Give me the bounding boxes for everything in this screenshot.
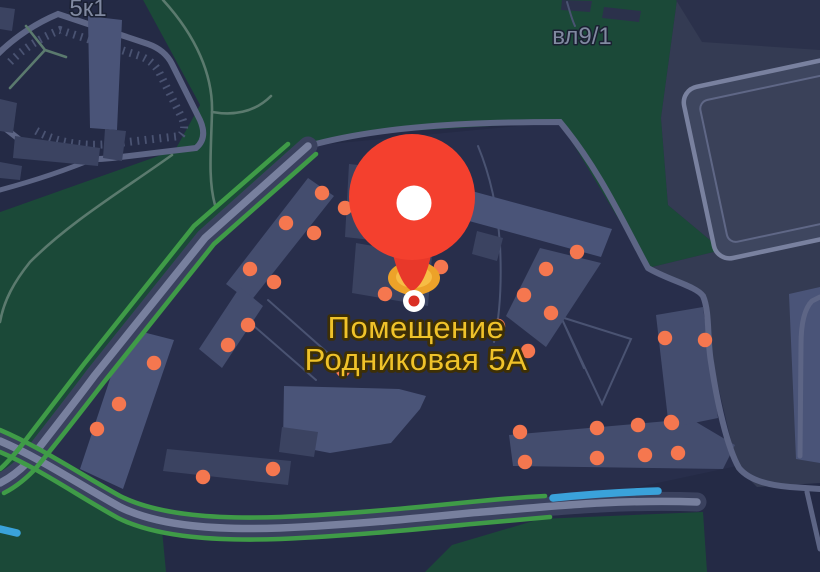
entrance-marker[interactable] [513,425,527,439]
entrance-marker[interactable] [570,245,584,259]
entrance-marker[interactable] [112,397,126,411]
entrance-marker[interactable] [590,451,604,465]
entrance-marker[interactable] [267,275,281,289]
entrance-marker[interactable] [147,356,161,370]
entrance-marker[interactable] [90,422,104,436]
entrance-marker[interactable] [658,331,672,345]
entrance-marker[interactable] [196,470,210,484]
entrance-marker[interactable] [518,455,532,469]
entrance-marker[interactable] [698,333,712,347]
entrance-marker[interactable] [631,418,645,432]
place-label-line2[interactable]: Родниковая 5А [305,342,528,377]
entrance-marker[interactable] [671,446,685,460]
entrance-marker[interactable] [665,416,679,430]
map-screen: 5к1 вл9/1 Помещение Родниковая 5А [0,0,820,572]
entrance-marker[interactable] [590,421,604,435]
entrance-marker[interactable] [378,287,392,301]
entrance-marker[interactable] [638,448,652,462]
map-canvas[interactable]: 5к1 вл9/1 Помещение Родниковая 5А [0,0,820,572]
label-vl9-1: вл9/1 [552,23,612,50]
place-label-line1[interactable]: Помещение [328,310,505,345]
entrance-marker[interactable] [539,262,553,276]
point-marker-center [409,296,420,307]
entrance-marker[interactable] [266,462,280,476]
label-5k1: 5к1 [69,0,106,22]
entrance-marker[interactable] [307,226,321,240]
pin-hole [397,186,432,221]
entrance-marker[interactable] [221,338,235,352]
entrance-marker[interactable] [241,318,255,332]
entrance-marker[interactable] [517,288,531,302]
entrance-marker[interactable] [544,306,558,320]
entrance-marker[interactable] [243,262,257,276]
entrance-marker[interactable] [315,186,329,200]
entrance-marker[interactable] [279,216,293,230]
